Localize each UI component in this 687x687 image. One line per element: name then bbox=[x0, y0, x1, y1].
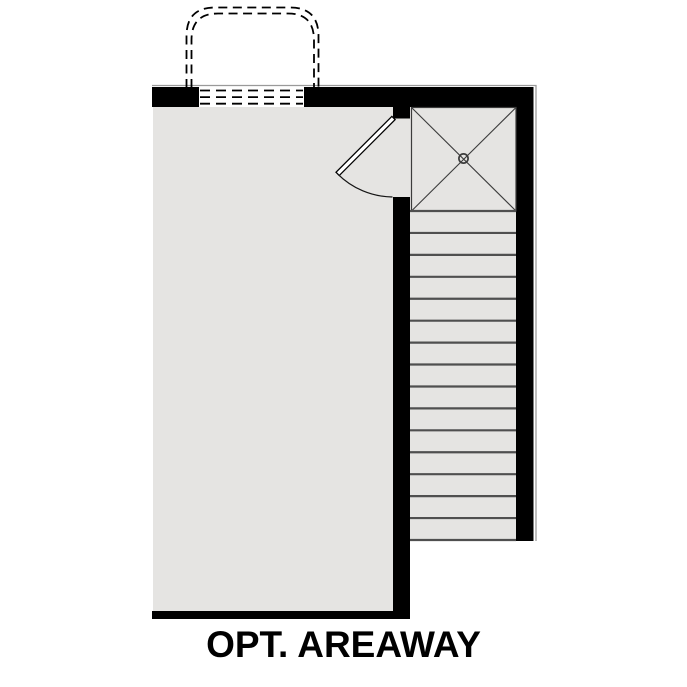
floorplan-canvas bbox=[0, 0, 687, 687]
areaway-outline-inner bbox=[192, 14, 315, 89]
bottom-wall bbox=[152, 611, 410, 619]
stair-divider-wall-lower bbox=[393, 197, 410, 619]
room-floor bbox=[153, 107, 393, 611]
top-wall-left-segment bbox=[152, 87, 199, 107]
floorplan bbox=[0, 0, 687, 687]
door-opening-floor bbox=[393, 119, 410, 198]
areaway-dashed-outline bbox=[187, 8, 319, 89]
stair-divider-wall-upper-stub bbox=[393, 107, 410, 119]
areaway-outline-outer bbox=[187, 8, 319, 89]
plan-label: OPT. AREAWAY bbox=[0, 624, 687, 666]
top-wall-right-segment bbox=[304, 87, 534, 107]
basement-window-dashes bbox=[200, 91, 303, 104]
right-wall bbox=[516, 87, 534, 541]
